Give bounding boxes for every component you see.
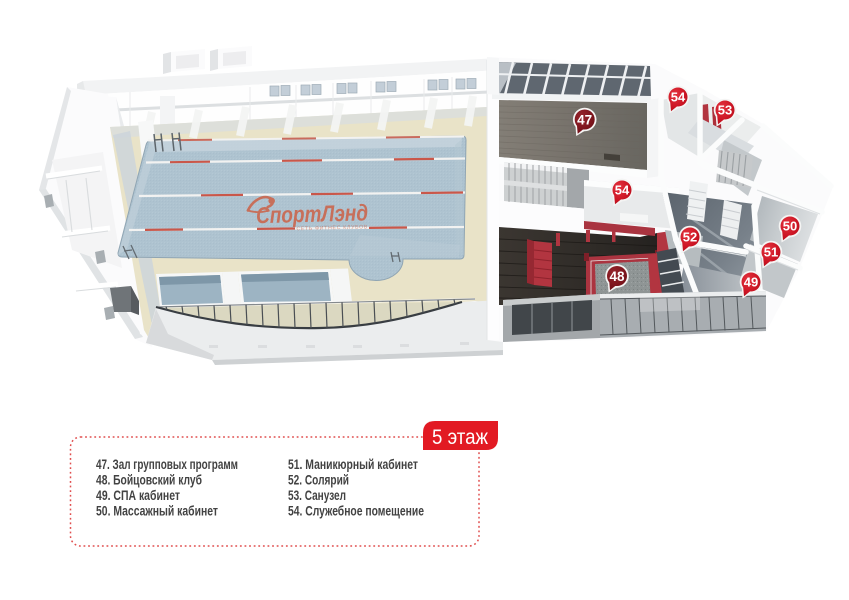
svg-text:52: 52 (683, 230, 697, 245)
svg-text:5 этаж: 5 этаж (432, 426, 488, 449)
svg-text:53: 53 (718, 103, 732, 118)
svg-text:54. Служебное помещение: 54. Служебное помещение (288, 503, 424, 519)
svg-text:50: 50 (783, 219, 797, 234)
svg-text:48: 48 (609, 269, 625, 284)
svg-text:52. Солярий: 52. Солярий (288, 472, 349, 488)
svg-text:49: 49 (744, 275, 758, 290)
svg-text:50. Массажный кабинет: 50. Массажный кабинет (96, 503, 218, 519)
svg-text:47: 47 (577, 112, 592, 127)
svg-text:51. Маникюрный кабинет: 51. Маникюрный кабинет (288, 456, 418, 472)
svg-text:53. Санузел: 53. Санузел (288, 487, 346, 503)
svg-text:47. Зал групповых программ: 47. Зал групповых программ (96, 456, 238, 472)
svg-text:51: 51 (764, 245, 778, 260)
svg-text:48. Бойцовский клуб: 48. Бойцовский клуб (96, 472, 202, 488)
svg-text:54: 54 (615, 183, 630, 198)
svg-text:54: 54 (671, 90, 686, 105)
svg-text:49. СПА кабинет: 49. СПА кабинет (96, 487, 180, 503)
